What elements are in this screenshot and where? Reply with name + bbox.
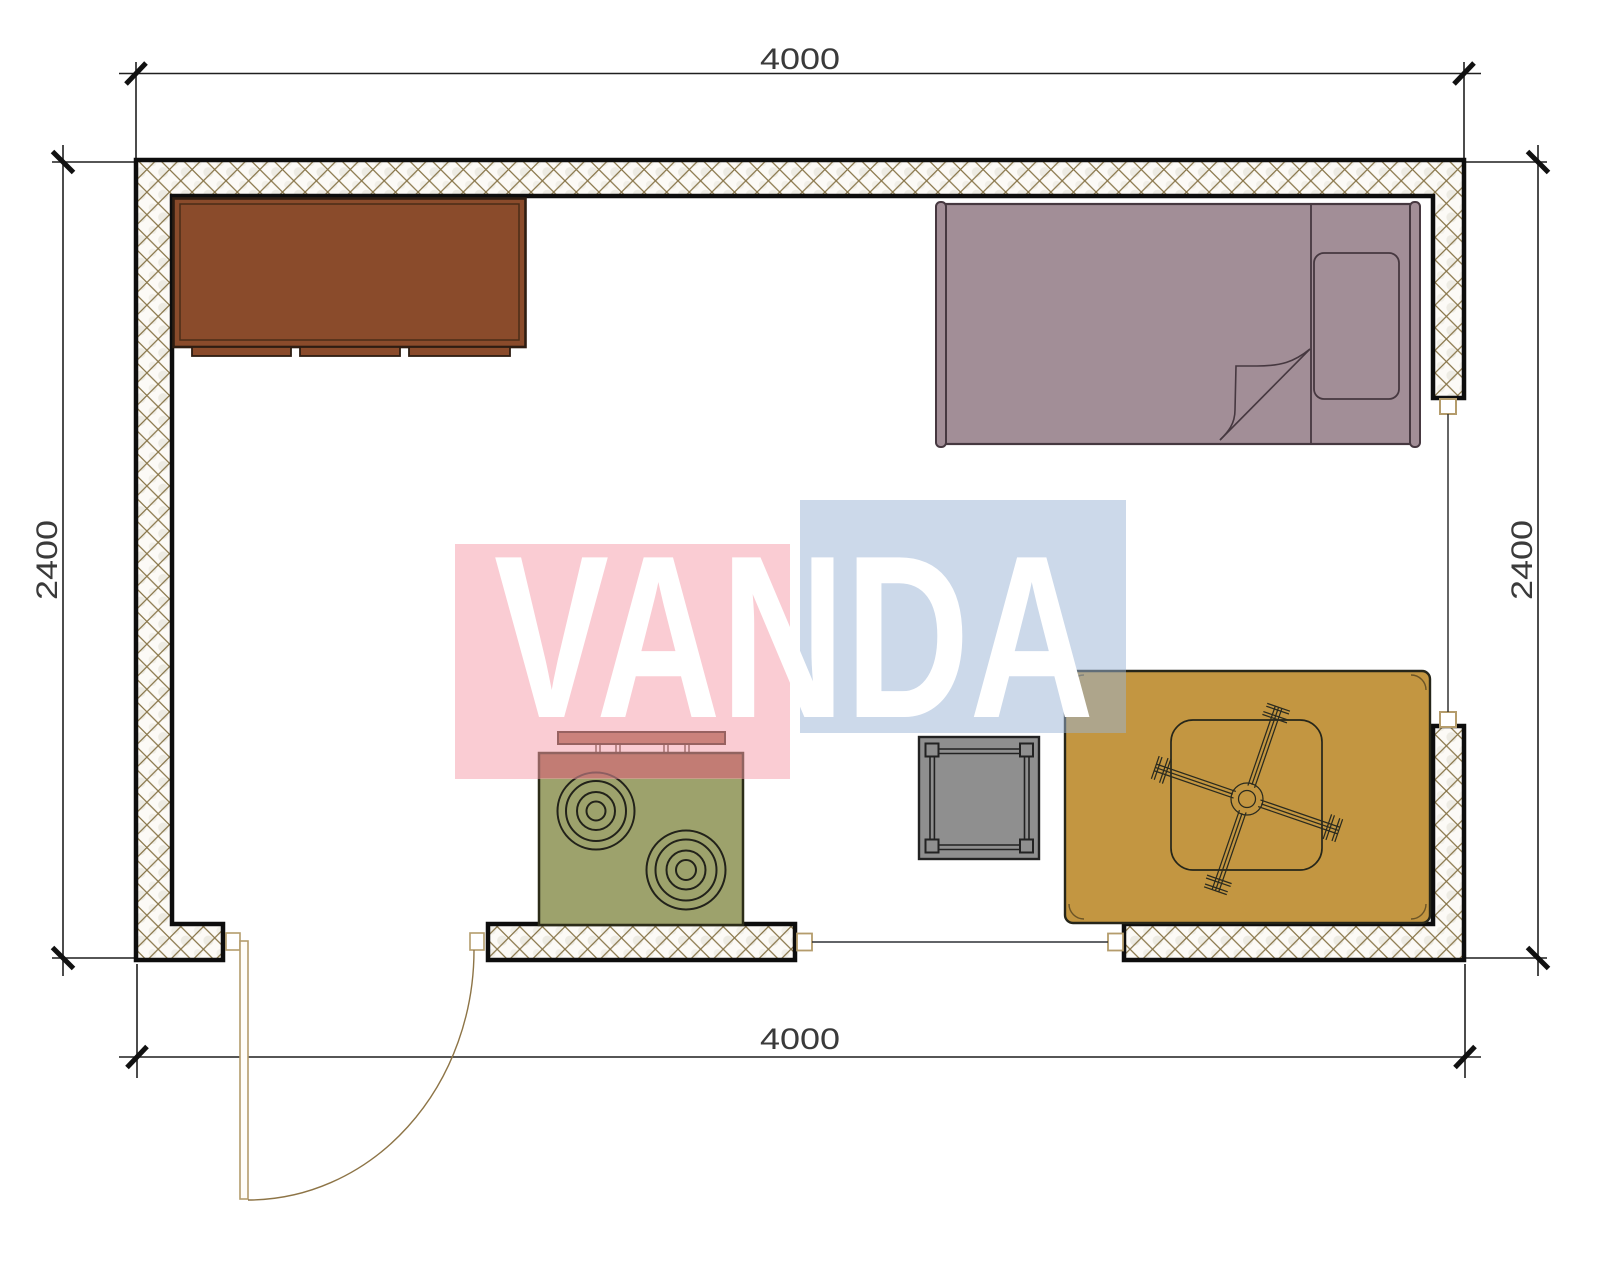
svg-text:VANDA: VANDA [494,508,1094,767]
svg-text:4000: 4000 [760,43,840,76]
svg-text:2400: 2400 [1506,520,1539,600]
svg-text:4000: 4000 [760,1023,840,1056]
svg-text:2400: 2400 [31,520,64,600]
